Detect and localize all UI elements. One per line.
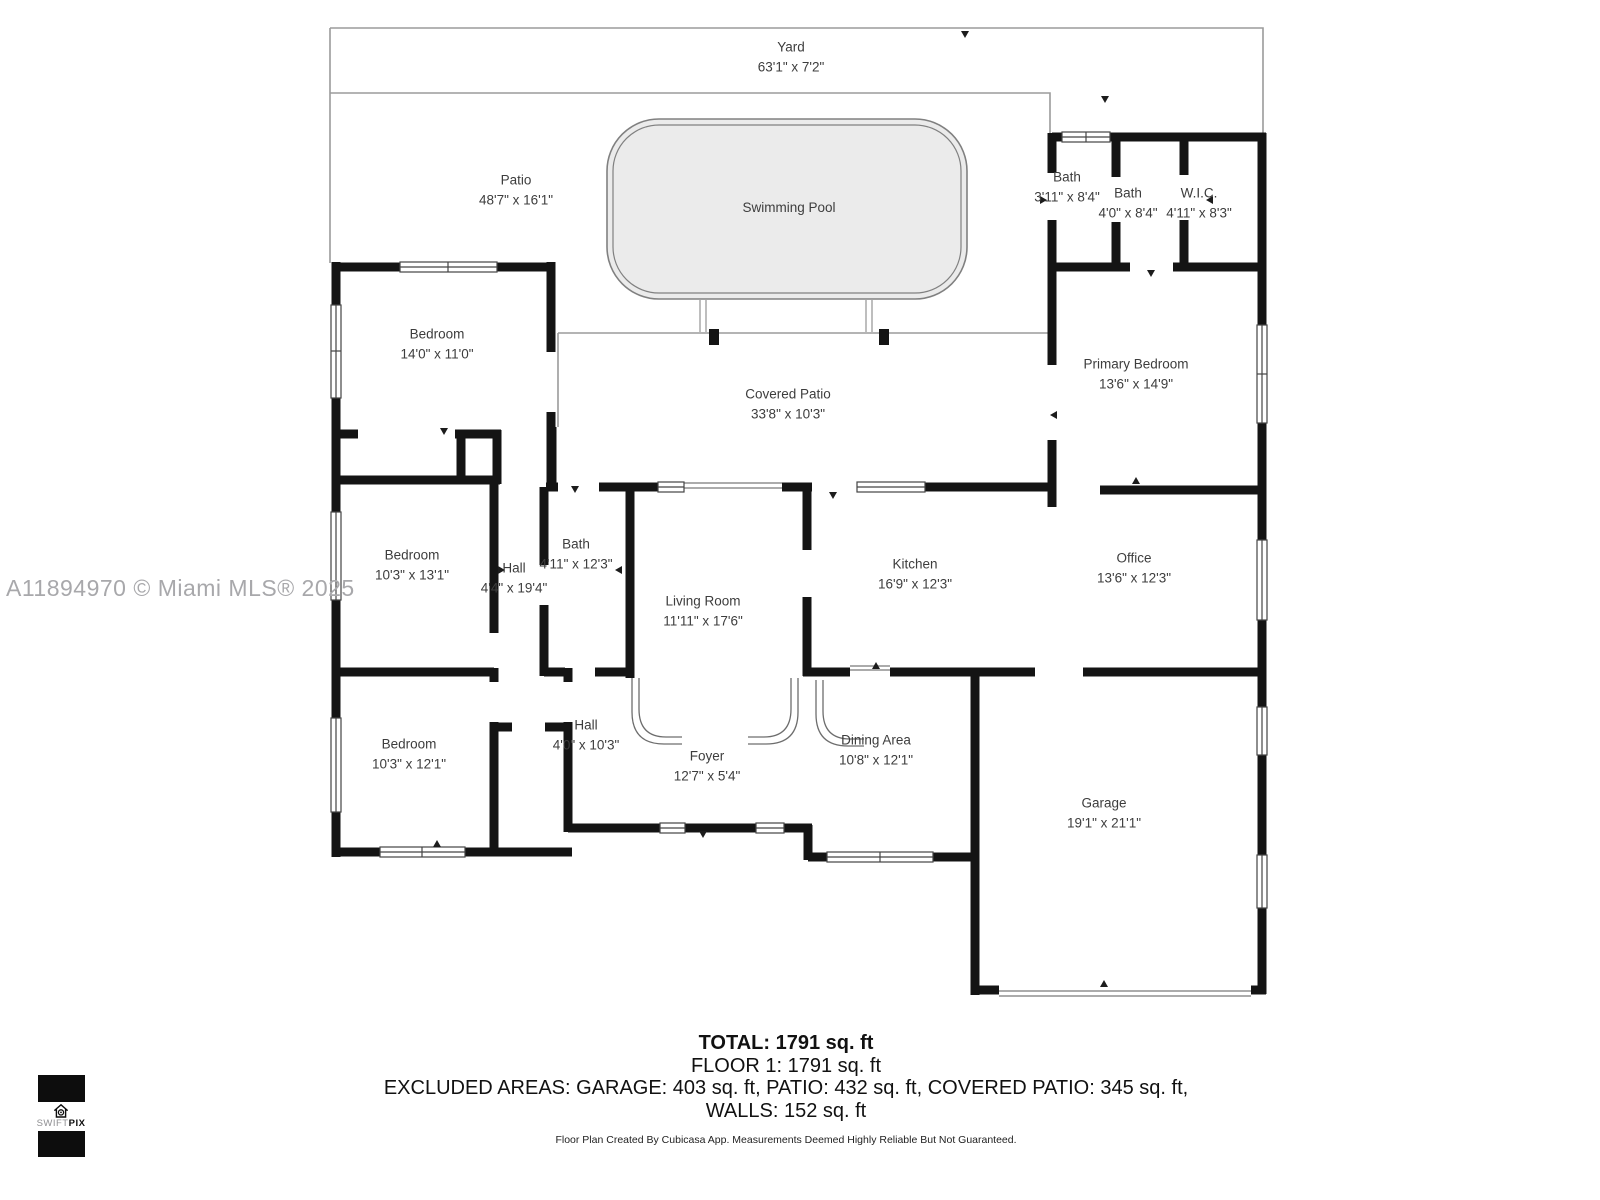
- area-summary: TOTAL: 1791 sq. ft FLOOR 1: 1791 sq. ft …: [384, 1032, 1188, 1146]
- opening-lines: [684, 483, 1251, 996]
- logo-bottom-block: [38, 1131, 85, 1157]
- mls-watermark: A11894970 © Miami MLS® 2025: [6, 575, 355, 602]
- swiftpix-wordmark: SWIFTPIX: [36, 1118, 86, 1129]
- window-vertical: [331, 305, 1267, 908]
- swimming-pool-shape: [607, 119, 967, 299]
- logo-top-block: [38, 1075, 85, 1102]
- floor-area: FLOOR 1: 1791 sq. ft: [384, 1055, 1188, 1078]
- door-guides: [632, 678, 864, 746]
- swiftpix-logo: SWIFTPIX: [36, 1075, 86, 1157]
- total-area: TOTAL: 1791 sq. ft: [384, 1032, 1188, 1055]
- floor-plan: Yard 63'1" x 7'2" Patio 48'7" x 16'1" Sw…: [0, 0, 1600, 1200]
- walls-area: WALLS: 152 sq. ft: [384, 1100, 1188, 1123]
- excluded-areas: EXCLUDED AREAS: GARAGE: 403 sq. ft, PATI…: [384, 1077, 1188, 1100]
- disclaimer-text: Floor Plan Created By Cubicasa App. Meas…: [384, 1134, 1188, 1146]
- floor-plan-page: { "watermark": "A11894970 © Miami MLS® 2…: [0, 0, 1600, 1200]
- swiftpix-house-icon: [36, 1103, 86, 1118]
